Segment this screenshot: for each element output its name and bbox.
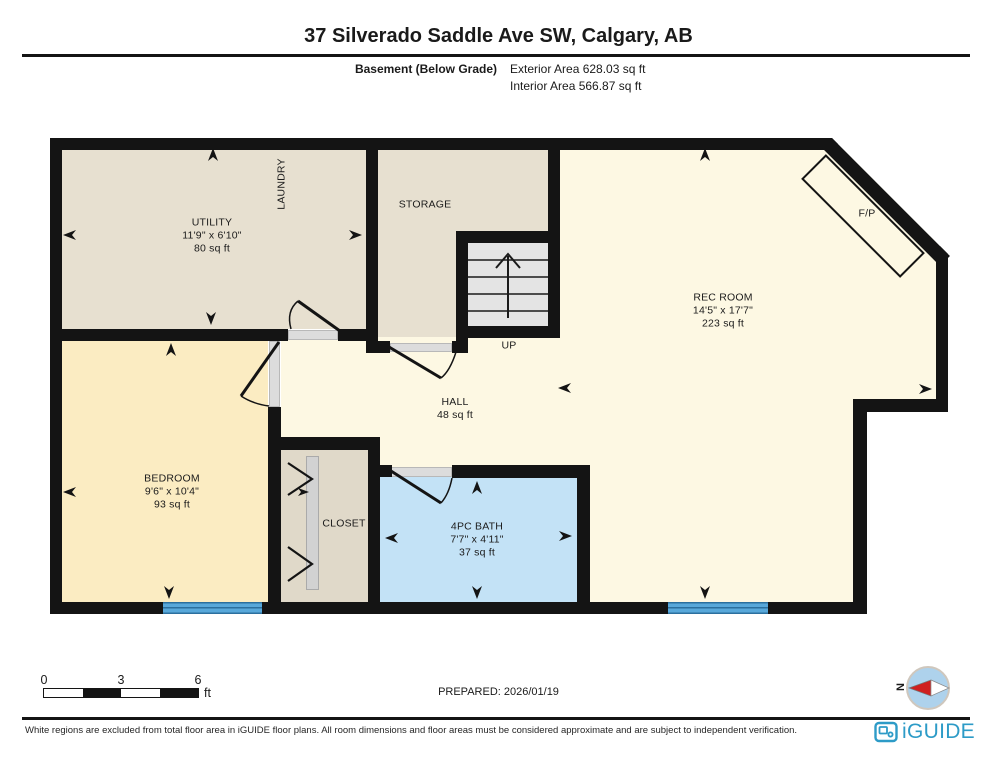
room-label-rec-room: REC ROOM 14'5" x 17'7" 223 sq ft [693,292,753,331]
scale-segment [160,689,199,697]
page-title: 37 Silverado Saddle Ave SW, Calgary, AB [0,25,997,48]
wall [366,341,390,353]
room-name: 4PC BATH [450,521,503,534]
room-label-fireplace: F/P [859,208,876,221]
stairs-up-label: UP [502,340,517,353]
bath-door-threshold [390,467,452,477]
wall [577,465,590,614]
room-label-hall: HALL 48 sq ft [437,396,473,422]
room-dims: 14'5" x 17'7" [693,305,753,318]
room-name: CLOSET [322,518,365,531]
bedroom-window [163,602,262,614]
floor-label: Basement (Below Grade) [0,62,497,76]
wall [452,341,468,353]
room-dims: 9'6" x 10'4" [144,486,200,499]
room-label-bedroom: BEDROOM 9'6" x 10'4" 93 sq ft [144,473,200,512]
wall [268,407,281,614]
room-name: F/P [859,208,876,221]
room-area: 37 sq ft [450,547,503,560]
room-area: 48 sq ft [437,409,473,422]
footer-divider [22,717,970,720]
wall [338,329,378,341]
rec-room-area-upper [560,150,936,399]
floor-plan-page: 37 Silverado Saddle Ave SW, Calgary, AB … [0,0,997,768]
room-area: 223 sq ft [693,318,753,331]
iguide-logo-text: iGUIDE [902,720,975,744]
stairs-area [468,243,548,326]
room-dims: 7'7" x 4'11" [450,534,503,547]
room-area: 80 sq ft [182,243,241,256]
utility-door-threshold [288,330,338,340]
room-label-utility: UTILITY 11'9" x 6'10" 80 sq ft [182,217,241,256]
closet-door-track [306,456,319,590]
room-name: LAUNDRY [276,158,289,209]
room-name: STORAGE [399,199,452,212]
compass-icon [906,666,950,710]
iguide-logo-icon [874,721,898,743]
bedroom-door-threshold [269,341,280,407]
room-dims: 11'9" x 6'10" [182,230,241,243]
direction-label: UP [502,340,517,353]
compass-north-label: N [895,679,907,695]
rec-room-area-lower [560,399,855,602]
wall [853,399,867,614]
bedroom-area [62,341,268,602]
storage-door-threshold [390,343,452,352]
room-label-storage: STORAGE [399,199,452,212]
scale-segment [121,689,160,697]
wall [936,246,948,411]
rec-room-window [668,602,768,614]
wall [456,326,560,338]
wall [366,138,378,353]
disclaimer-text: White regions are excluded from total fl… [25,725,797,736]
room-label-laundry: LAUNDRY [276,158,289,209]
scale-tick-3: 3 [118,673,125,687]
wall [50,329,288,341]
iguide-logo: iGUIDE [874,720,975,744]
room-label-closet: CLOSET [322,518,365,531]
wall [456,231,560,243]
wall [281,437,380,450]
scale-segment [44,689,83,697]
wall [853,399,948,412]
room-name: BEDROOM [144,473,200,486]
room-name: HALL [437,396,473,409]
wall [50,138,62,614]
scale-tick-6: 6 [195,673,202,687]
wall [378,465,392,477]
interior-area: Interior Area 566.87 sq ft [510,79,641,93]
scale-tick-0: 0 [41,673,48,687]
scale-bar [43,688,199,698]
room-name: UTILITY [182,217,241,230]
room-name: REC ROOM [693,292,753,305]
wall [452,465,590,478]
room-area: 93 sq ft [144,499,200,512]
wall [50,138,838,150]
wall [368,437,380,614]
exterior-area: Exterior Area 628.03 sq ft [510,62,645,76]
room-label-bath: 4PC BATH 7'7" x 4'11" 37 sq ft [450,521,503,560]
header-divider [22,54,970,57]
scale-segment [83,689,122,697]
